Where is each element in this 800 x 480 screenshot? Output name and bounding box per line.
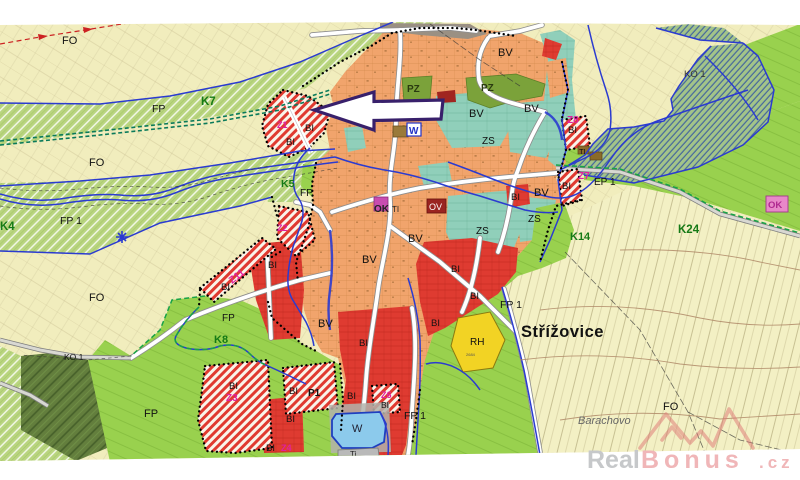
svg-text:ZS: ZS bbox=[476, 226, 489, 237]
svg-text:BI: BI bbox=[286, 414, 295, 425]
svg-text:FP 1: FP 1 bbox=[60, 215, 82, 227]
svg-text:BI: BI bbox=[511, 192, 520, 203]
svg-text:BI: BI bbox=[359, 338, 368, 349]
svg-text:BV: BV bbox=[469, 108, 484, 120]
svg-text:FO: FO bbox=[62, 35, 78, 47]
svg-text:Z7: Z7 bbox=[578, 171, 590, 182]
svg-text:Z8: Z8 bbox=[567, 115, 579, 126]
svg-text:BI: BI bbox=[431, 318, 440, 329]
svg-text:W: W bbox=[352, 423, 363, 435]
svg-text:BI: BI bbox=[381, 400, 389, 410]
svg-text:BV: BV bbox=[362, 254, 377, 266]
svg-text:BI: BI bbox=[568, 125, 577, 136]
svg-text:Bonus: Bonus bbox=[641, 446, 744, 474]
svg-text:K14: K14 bbox=[570, 231, 591, 243]
svg-text:FP: FP bbox=[222, 313, 235, 324]
svg-text:BI: BI bbox=[451, 264, 460, 275]
svg-text:FP 1: FP 1 bbox=[500, 299, 522, 311]
svg-text:TI: TI bbox=[579, 147, 586, 156]
svg-text:K7: K7 bbox=[201, 96, 216, 108]
svg-text:BI: BI bbox=[347, 391, 356, 402]
svg-text:P1: P1 bbox=[308, 388, 321, 399]
svg-text:Real: Real bbox=[587, 446, 640, 474]
svg-text:BI: BI bbox=[229, 381, 238, 392]
svg-text:PZ: PZ bbox=[481, 83, 494, 94]
svg-text:RH: RH bbox=[470, 337, 484, 348]
svg-text:OK: OK bbox=[374, 204, 390, 215]
svg-text:2684: 2684 bbox=[466, 352, 476, 357]
svg-text:W: W bbox=[409, 126, 419, 137]
svg-text:TI: TI bbox=[392, 205, 399, 214]
svg-text:EP 1: EP 1 bbox=[594, 177, 616, 188]
svg-text:PZ: PZ bbox=[407, 84, 420, 95]
svg-text:Z4: Z4 bbox=[281, 443, 292, 453]
svg-text:BI: BI bbox=[289, 386, 298, 397]
svg-text:OK: OK bbox=[768, 200, 782, 211]
svg-text:BI: BI bbox=[470, 291, 479, 302]
svg-text:BV: BV bbox=[408, 233, 423, 245]
svg-text:BV: BV bbox=[534, 187, 549, 199]
svg-text:K24: K24 bbox=[678, 224, 700, 236]
svg-text:Střížovice: Střížovice bbox=[521, 323, 604, 341]
svg-text:FP: FP bbox=[152, 103, 165, 115]
svg-text:Z6: Z6 bbox=[381, 390, 392, 400]
svg-text:FP: FP bbox=[300, 188, 313, 199]
svg-text:BV: BV bbox=[498, 47, 513, 59]
svg-text:KO 1: KO 1 bbox=[64, 352, 84, 362]
svg-text:.cz: .cz bbox=[759, 453, 794, 472]
svg-text:BI: BI bbox=[286, 137, 295, 148]
svg-text:K5: K5 bbox=[281, 178, 295, 190]
svg-text:BI: BI bbox=[266, 443, 275, 454]
svg-text:KO 1: KO 1 bbox=[684, 69, 706, 80]
svg-text:FO: FO bbox=[89, 292, 105, 304]
svg-text:BI: BI bbox=[305, 123, 314, 134]
svg-text:FP 1: FP 1 bbox=[404, 410, 426, 422]
svg-text:Z3: Z3 bbox=[226, 393, 238, 404]
svg-text:K4: K4 bbox=[0, 221, 15, 233]
svg-text:BI: BI bbox=[268, 260, 277, 271]
svg-text:ZS: ZS bbox=[528, 214, 541, 225]
svg-text:Barachovo: Barachovo bbox=[578, 415, 631, 427]
svg-text:FO: FO bbox=[89, 157, 105, 169]
svg-text:BI: BI bbox=[221, 282, 230, 293]
svg-text:FP: FP bbox=[144, 408, 158, 420]
svg-text:K8: K8 bbox=[214, 334, 228, 346]
svg-text:Z1: Z1 bbox=[277, 120, 288, 130]
svg-text:BI: BI bbox=[562, 181, 571, 192]
svg-text:OV: OV bbox=[429, 202, 442, 212]
svg-text:FO: FO bbox=[663, 401, 679, 413]
svg-text:BV: BV bbox=[318, 318, 333, 330]
svg-text:BV: BV bbox=[524, 103, 539, 115]
svg-text:Z2: Z2 bbox=[277, 223, 288, 233]
